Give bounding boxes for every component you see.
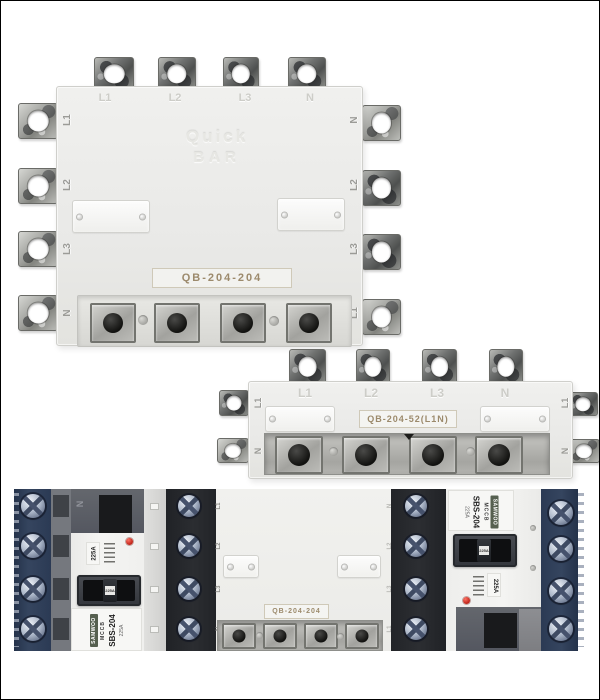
terminal-lug — [217, 438, 249, 463]
brand-tag: SAMWOO — [491, 496, 499, 529]
model-label: QB-204-52(L1N) — [359, 410, 457, 428]
breaker-side-rail — [144, 489, 166, 651]
phase-label: L3 — [422, 386, 452, 400]
terminal-recess — [264, 433, 550, 475]
cover-screw — [228, 564, 233, 569]
breaker-model: SBS-204 — [472, 496, 481, 528]
terminal — [409, 436, 457, 474]
terminal-screw — [21, 577, 45, 601]
phase-label: L1 — [250, 396, 266, 410]
lug-hole — [431, 356, 449, 376]
breaker-rating: 225A — [464, 506, 470, 518]
clear-cover — [480, 406, 550, 432]
mount-base — [519, 609, 541, 651]
terminal-screw — [405, 618, 427, 640]
rail-tab — [150, 543, 159, 550]
cover-screw — [485, 417, 490, 422]
phase-label: N — [490, 386, 520, 400]
lug-hole — [576, 444, 592, 458]
notch — [404, 434, 414, 440]
rivet — [466, 447, 475, 456]
rail-tab — [150, 626, 159, 633]
lug-terminal-block — [166, 489, 216, 651]
terminal — [222, 623, 256, 649]
breaker-type: MCCB — [100, 621, 106, 640]
terminal-screw — [405, 535, 427, 557]
phase-label: L2 — [356, 386, 386, 400]
breaker-molding-dark — [484, 613, 517, 648]
center-quickbar-panel: L1 L2 L3 N QB-204-204 N L2 L3 L1 — [216, 489, 391, 651]
terminal-lug — [489, 349, 523, 384]
terminal — [342, 436, 390, 474]
rivet — [256, 632, 263, 639]
phase-label: L1 — [212, 499, 226, 513]
cover-screw — [540, 417, 545, 422]
connector-tab — [53, 495, 69, 517]
terminal-screw — [178, 495, 200, 517]
terminal-recess — [217, 620, 383, 651]
model-label: QB-204-204 — [264, 604, 329, 619]
cover-screw — [371, 564, 376, 569]
terminal-lug — [356, 349, 390, 384]
terminal-screw — [549, 579, 573, 603]
terminal-screw — [549, 537, 573, 561]
connector-tab — [53, 618, 69, 640]
breaker-molding-dark — [99, 495, 132, 533]
terminal-hole — [356, 630, 369, 643]
terminal — [345, 623, 379, 649]
cover-screw — [325, 417, 330, 422]
spec-fineprint — [104, 543, 115, 564]
clear-cover — [265, 406, 335, 432]
lug-hole — [225, 443, 241, 457]
left-breaker: N 225A 225A SAMWOO MCCB SBS-204 225A — [71, 489, 166, 651]
breaker-rating: 225A — [119, 625, 125, 637]
connector-strip — [51, 489, 71, 651]
terminal — [275, 436, 323, 474]
nameplate-content: SAMWOO MCCB SBS-204 225A — [72, 609, 143, 652]
terminal-screw — [405, 578, 427, 600]
pole-label: N — [73, 497, 87, 511]
terminal-hole — [315, 630, 328, 643]
phase-label: L2 — [212, 539, 226, 553]
lug-hole — [364, 356, 381, 376]
spec-fineprint — [473, 576, 484, 597]
breaker-handle: 225A — [453, 534, 517, 567]
phase-label: N — [557, 444, 573, 458]
rating-tag: 225A — [487, 573, 501, 597]
connector-tab — [53, 578, 69, 600]
terminal — [263, 623, 297, 649]
terminal-hole — [355, 444, 377, 466]
nameplate: SAMWOO MCCB SBS-204 225A — [71, 608, 142, 651]
lug-hole — [497, 356, 514, 376]
terminal-screw — [405, 495, 427, 517]
rivet — [337, 633, 344, 640]
product-photo-canvas: L1 L2 L3 N Quick BAR L1 L2 L3 N N L2 L3 … — [0, 0, 600, 700]
breaker-handle: 225A — [77, 575, 141, 606]
terminal-lug — [219, 390, 249, 416]
terminal-screw — [21, 534, 45, 558]
middle-device-body: L1 L2 L3 N L1 N L1 N QB-204-52(L1N) — [248, 381, 573, 479]
handle-tag: 225A — [479, 546, 489, 555]
breaker-terminal-block — [541, 489, 578, 651]
terminal-lug — [422, 349, 457, 384]
block-teeth — [578, 493, 584, 647]
phase-label: L1 — [290, 386, 320, 400]
trip-indicator — [463, 597, 470, 604]
clear-cover — [223, 555, 259, 578]
cover-screw — [249, 564, 254, 569]
terminal-hole — [274, 630, 287, 643]
nameplate: SAMWOO MCCB SBS-204 225A — [448, 490, 514, 531]
handle-tag: 225A — [105, 586, 115, 595]
rail-tab — [150, 503, 159, 510]
connector-tab — [53, 535, 69, 557]
cover-screw — [270, 417, 275, 422]
lug-terminal-block — [391, 489, 446, 651]
trip-indicator — [126, 538, 133, 545]
terminal — [475, 436, 523, 474]
terminal-hole — [488, 444, 510, 466]
nameplate-content: SAMWOO MCCB SBS-204 225A — [449, 492, 515, 533]
breaker-molding: N — [71, 489, 144, 533]
terminal-screw — [549, 617, 573, 641]
lug-hole — [226, 396, 241, 411]
lug-hole — [575, 397, 590, 411]
terminal-lug — [289, 349, 326, 384]
terminal — [304, 623, 338, 649]
terminal-hole — [288, 444, 310, 466]
terminal-screw — [549, 501, 573, 525]
rail-tab — [150, 586, 159, 593]
rating-text: 225A — [88, 543, 101, 565]
phase-label: L1 — [557, 396, 573, 410]
terminal-screw — [21, 617, 45, 641]
terminal-hole — [233, 630, 246, 643]
brand-tag: SAMWOO — [90, 614, 98, 647]
breaker-type: MCCB — [483, 503, 489, 522]
terminal-screw — [178, 578, 200, 600]
block-teeth — [14, 493, 19, 647]
lug-hole — [298, 356, 317, 376]
rating-tag: 225A — [86, 542, 100, 565]
rating-text: 225A — [488, 574, 502, 598]
terminal-screw — [21, 494, 45, 518]
terminal-screw — [178, 618, 200, 640]
cover-screw — [342, 564, 347, 569]
clear-cover — [337, 555, 381, 578]
breaker-model: SBS-204 — [108, 614, 117, 646]
rivet — [530, 525, 536, 531]
terminal-screw — [178, 535, 200, 557]
rivet — [329, 447, 338, 456]
installation-photo: N 225A 225A SAMWOO MCCB SBS-204 225A — [14, 489, 588, 651]
breaker-terminal-block — [14, 489, 51, 651]
terminal-hole — [422, 444, 444, 466]
phase-label: L3 — [212, 582, 226, 596]
rivet — [530, 565, 536, 571]
